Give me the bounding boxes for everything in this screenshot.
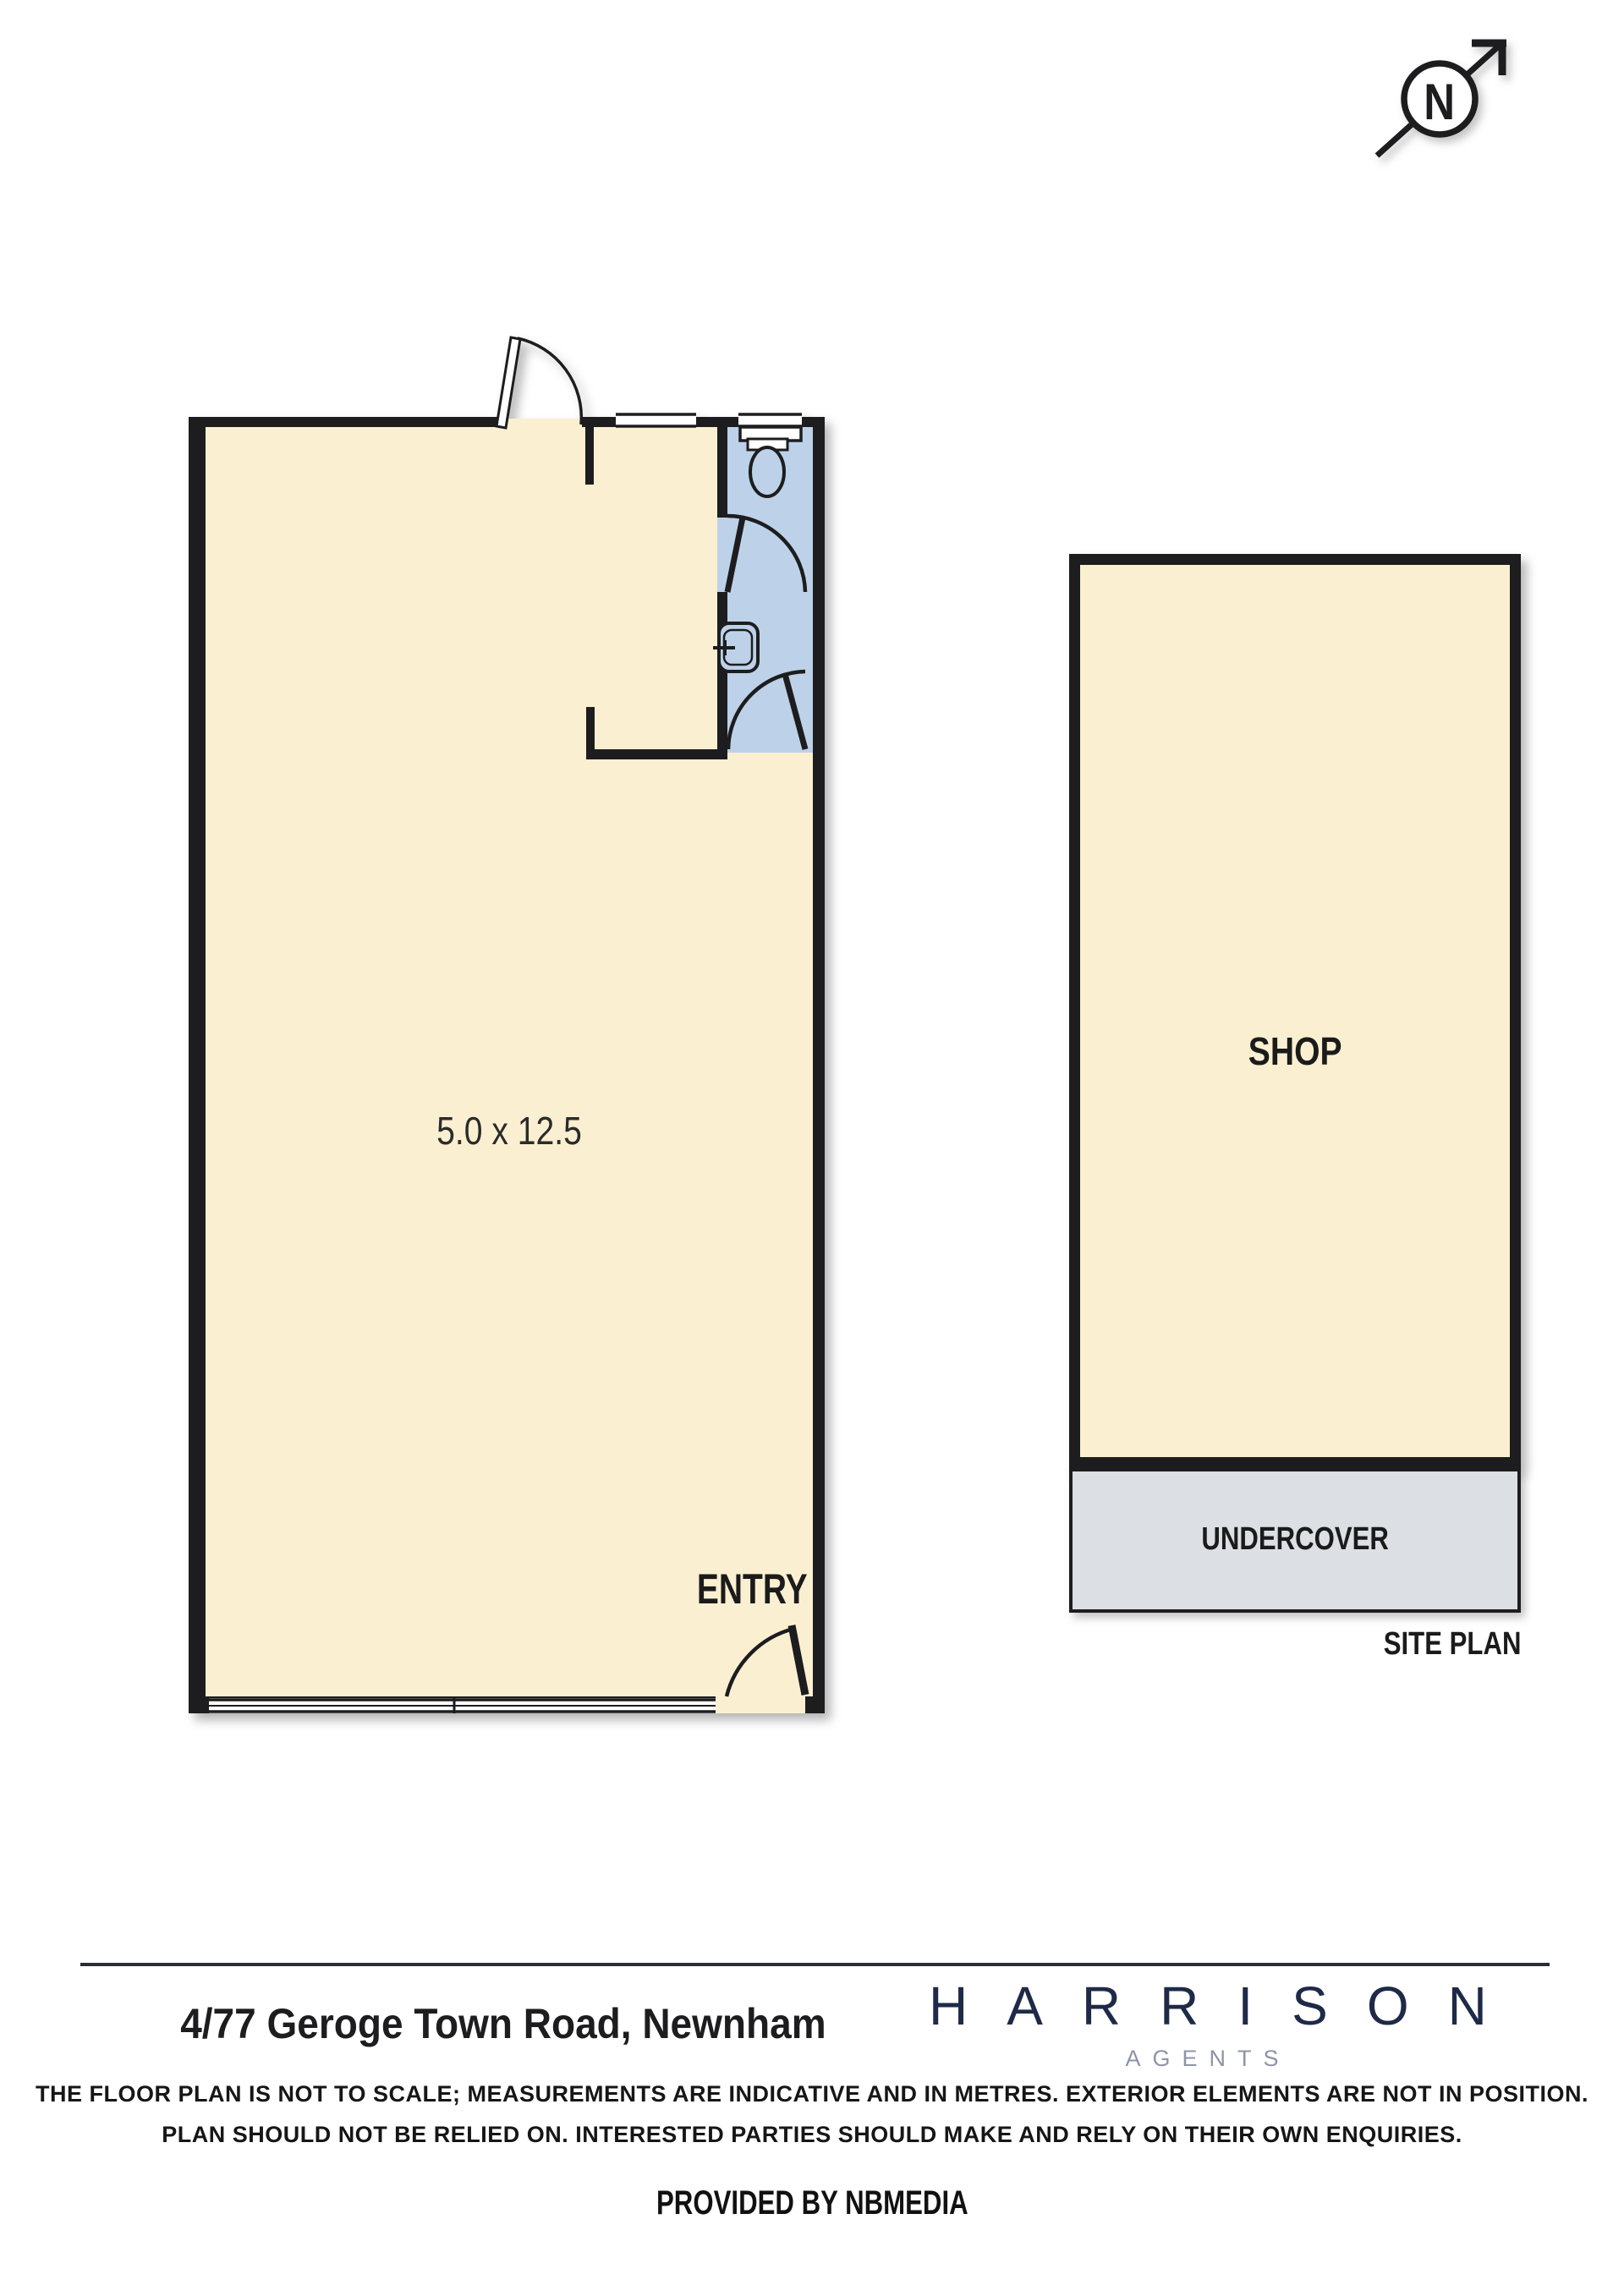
provider-credit: PROVIDED BY NBMEDIA (0, 2184, 1624, 2222)
sink-icon (713, 623, 758, 671)
top-door (497, 337, 581, 428)
undercover-label: UNDERCOVER (1069, 1522, 1521, 1558)
room-dimensions-label: 5.0 x 12.5 (206, 1110, 813, 1153)
disclaimer-line-2: PLAN SHOULD NOT BE RELIED ON. INTERESTED… (0, 2123, 1624, 2148)
bathroom-door-threshold (717, 518, 727, 592)
site-plan-caption: SITE PLAN (1353, 1627, 1521, 1663)
entry-label: ENTRY (666, 1566, 808, 1613)
site-plan-shop-box (1075, 560, 1516, 1463)
floor-plan (189, 337, 825, 1713)
footer-divider (80, 1963, 1550, 1966)
shop-label: SHOP (1069, 1030, 1521, 1073)
window-top-left (616, 413, 696, 428)
disclaimer-line-1: THE FLOOR PLAN IS NOT TO SCALE; MEASUREM… (0, 2082, 1624, 2107)
floorplan-page: N 5.0 x 12.5 ENTRY SHOP UNDERCOVER SITE … (0, 0, 1624, 2296)
site-plan (1071, 560, 1519, 1612)
window-shopfront (209, 1698, 716, 1713)
agency-logo: HARRISON (929, 1976, 1526, 2036)
north-label: N (1406, 74, 1473, 130)
doorway-threshold-top (499, 419, 582, 429)
doorway-threshold-entry (716, 1696, 805, 1713)
agency-logo-subtitle: AGENTS (929, 2047, 1487, 2072)
property-address: 4/77 Geroge Town Road, Newnham (0, 2001, 1007, 2047)
